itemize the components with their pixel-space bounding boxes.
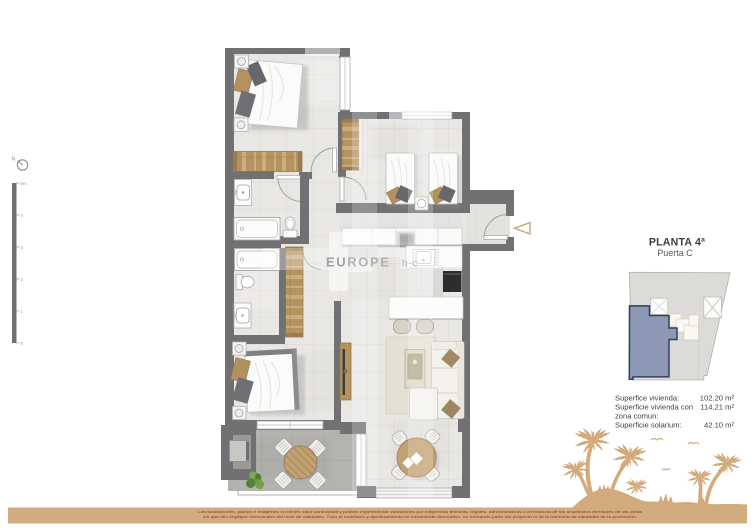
svg-text:N: N: [12, 157, 16, 163]
svg-text:Las ilustraciones, planos e im: Las ilustraciones, planos e imágenes no …: [198, 510, 642, 514]
svg-text:Superficie solarium:: Superficie solarium:: [615, 421, 682, 430]
svg-text:3: 3: [21, 245, 24, 250]
svg-text:Superficie vivienda con: Superficie vivienda con: [615, 403, 693, 412]
svg-text:42.10 m²: 42.10 m²: [704, 421, 734, 430]
svg-text:114.21 m²: 114.21 m²: [700, 403, 734, 412]
svg-text:1: 1: [21, 309, 24, 314]
svg-text:h-c: h-c: [402, 258, 418, 270]
svg-text:102.20 m²: 102.20 m²: [700, 394, 735, 403]
svg-text:5m: 5m: [21, 181, 28, 186]
svg-text:zona comun:: zona comun:: [615, 412, 658, 421]
svg-text:0: 0: [21, 341, 24, 346]
svg-text:2: 2: [21, 277, 24, 282]
svg-text:sin que ello implique menoscab: sin que ello implique menoscabo del nive…: [203, 515, 637, 519]
svg-text:Puerta C: Puerta C: [657, 248, 693, 258]
svg-text:PLANTA 4ª: PLANTA 4ª: [649, 237, 705, 249]
svg-text:4: 4: [21, 213, 24, 218]
svg-text:EUROPE: EUROPE: [326, 255, 391, 270]
svg-text:Superfice vivienda:: Superfice vivienda:: [615, 394, 679, 403]
